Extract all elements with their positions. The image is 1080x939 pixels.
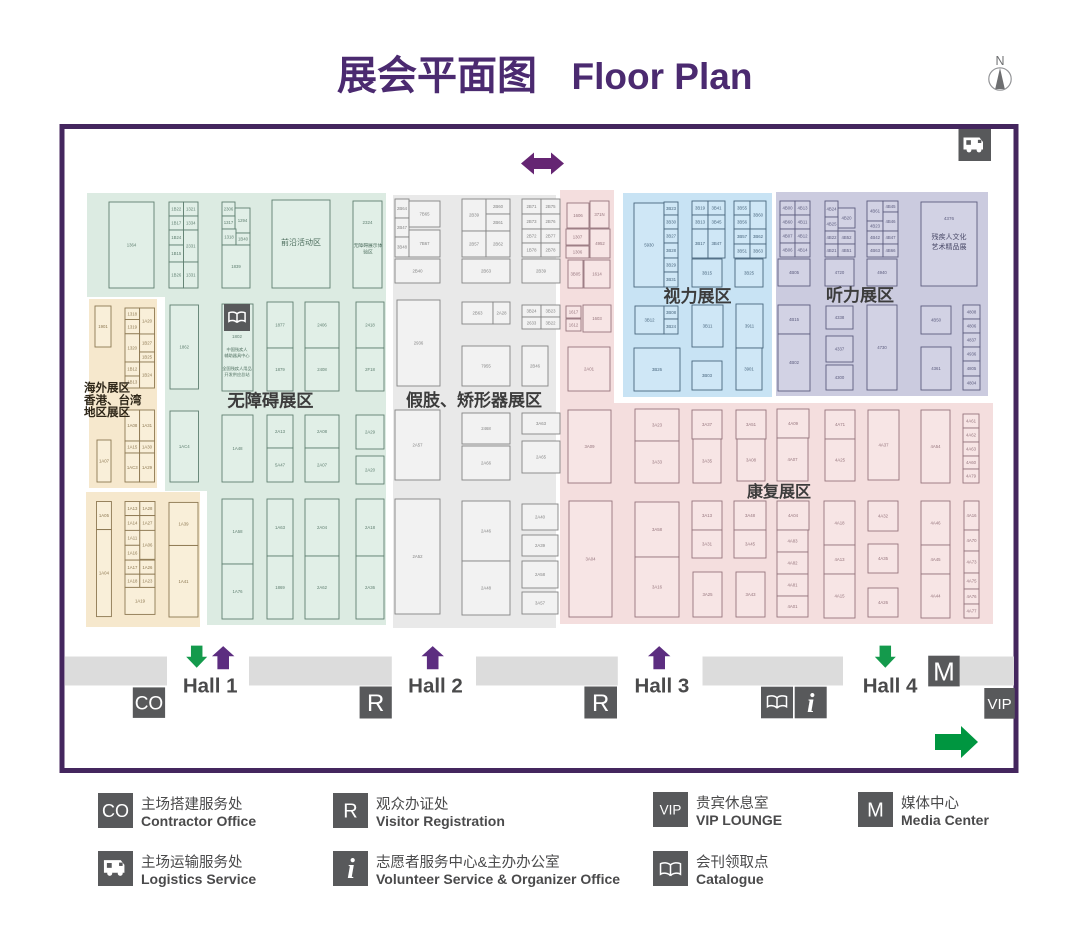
svg-text:4300: 4300 bbox=[835, 375, 845, 380]
svg-text:1879: 1879 bbox=[275, 367, 285, 372]
svg-text:3B47: 3B47 bbox=[711, 241, 722, 246]
svg-text:康复展区: 康复展区 bbox=[747, 482, 811, 501]
svg-text:3B08: 3B08 bbox=[666, 310, 677, 315]
svg-text:2B61: 2B61 bbox=[493, 220, 504, 225]
svg-text:2A20: 2A20 bbox=[365, 468, 376, 473]
svg-text:1A39: 1A39 bbox=[178, 522, 189, 527]
svg-text:4A46: 4A46 bbox=[930, 521, 941, 526]
svg-text:3B12: 3B12 bbox=[644, 318, 655, 323]
svg-text:1B17: 1B17 bbox=[171, 221, 182, 226]
svg-text:3B60: 3B60 bbox=[753, 213, 764, 218]
svg-text:2A40: 2A40 bbox=[535, 515, 546, 520]
svg-text:4B11: 4B11 bbox=[798, 220, 808, 225]
svg-text:4B42: 4B42 bbox=[870, 235, 881, 240]
svg-text:4A35: 4A35 bbox=[878, 556, 889, 561]
svg-text:1AC3: 1AC3 bbox=[127, 465, 138, 470]
svg-text:1306: 1306 bbox=[573, 250, 583, 255]
svg-text:VIP LOUNGE: VIP LOUNGE bbox=[696, 812, 782, 828]
svg-text:3B25: 3B25 bbox=[744, 271, 755, 276]
svg-text:4A54: 4A54 bbox=[930, 444, 941, 449]
svg-text:3911: 3911 bbox=[745, 324, 755, 329]
svg-text:1A26: 1A26 bbox=[142, 565, 153, 570]
svg-text:4B61: 4B61 bbox=[870, 209, 881, 214]
svg-text:1B26: 1B26 bbox=[171, 273, 182, 278]
svg-text:1318: 1318 bbox=[128, 311, 138, 316]
svg-text:3B48: 3B48 bbox=[397, 245, 408, 250]
svg-text:3B24: 3B24 bbox=[526, 309, 537, 314]
svg-text:1B22: 1B22 bbox=[171, 207, 182, 212]
svg-text:4A82: 4A82 bbox=[787, 561, 798, 566]
svg-text:展会平面图: 展会平面图 bbox=[337, 54, 537, 98]
svg-text:1901: 1901 bbox=[98, 324, 108, 329]
svg-text:3A58: 3A58 bbox=[652, 527, 663, 532]
svg-text:假肢、矫形器展区: 假肢、矫形器展区 bbox=[406, 390, 542, 410]
svg-text:4952: 4952 bbox=[595, 241, 605, 246]
svg-text:1A17: 1A17 bbox=[127, 565, 138, 570]
svg-text:3A63: 3A63 bbox=[536, 421, 547, 426]
svg-text:2468: 2468 bbox=[481, 426, 491, 431]
svg-text:4376: 4376 bbox=[944, 216, 955, 221]
svg-text:验区: 验区 bbox=[363, 249, 373, 256]
svg-text:4B14: 4B14 bbox=[797, 248, 808, 253]
svg-text:2B63: 2B63 bbox=[472, 311, 483, 316]
svg-text:2A52: 2A52 bbox=[412, 554, 423, 559]
svg-text:1A19: 1A19 bbox=[135, 599, 146, 604]
svg-text:3B51: 3B51 bbox=[737, 249, 748, 254]
svg-text:2A58: 2A58 bbox=[535, 572, 546, 577]
svg-text:贵宾休息室: 贵宾休息室 bbox=[696, 795, 769, 812]
svg-text:3B30: 3B30 bbox=[666, 220, 677, 225]
svg-text:2633: 2633 bbox=[527, 321, 537, 326]
svg-text:1A30: 1A30 bbox=[142, 445, 153, 450]
svg-text:3A33: 3A33 bbox=[652, 460, 663, 465]
svg-text:1A28: 1A28 bbox=[142, 506, 153, 511]
svg-text:2B71: 2B71 bbox=[526, 204, 537, 209]
svg-text:4A32: 4A32 bbox=[878, 514, 889, 519]
svg-text:1A13: 1A13 bbox=[127, 506, 138, 511]
svg-text:无障碍展示体: 无障碍展示体 bbox=[354, 242, 383, 249]
svg-text:Logistics Service: Logistics Service bbox=[141, 871, 256, 887]
svg-text:3B26: 3B26 bbox=[652, 367, 663, 372]
svg-text:2A57: 2A57 bbox=[412, 443, 423, 448]
svg-text:4A37: 4A37 bbox=[878, 443, 889, 448]
svg-text:1612: 1612 bbox=[569, 323, 579, 328]
svg-text:3B19: 3B19 bbox=[695, 206, 706, 211]
svg-text:4A73: 4A73 bbox=[966, 560, 977, 565]
svg-text:3901: 3901 bbox=[744, 367, 754, 372]
svg-text:1307: 1307 bbox=[573, 235, 583, 240]
svg-text:2B39: 2B39 bbox=[536, 269, 547, 274]
svg-text:3B41: 3B41 bbox=[711, 206, 722, 211]
svg-text:2B75: 2B75 bbox=[545, 204, 556, 209]
svg-text:2B39: 2B39 bbox=[469, 213, 480, 218]
svg-text:3B28: 3B28 bbox=[666, 248, 677, 253]
svg-text:3A23: 3A23 bbox=[652, 423, 663, 428]
svg-text:残疾人文化: 残疾人文化 bbox=[932, 232, 967, 241]
svg-text:3A16: 3A16 bbox=[652, 585, 663, 590]
svg-text:2A66: 2A66 bbox=[481, 461, 492, 466]
svg-text:2B46: 2B46 bbox=[530, 364, 541, 369]
svg-text:1334: 1334 bbox=[186, 221, 196, 226]
svg-text:3B13: 3B13 bbox=[695, 220, 706, 225]
svg-text:1606: 1606 bbox=[573, 213, 583, 218]
svg-text:4B00: 4B00 bbox=[782, 206, 793, 211]
svg-text:4A79: 4A79 bbox=[966, 474, 977, 479]
svg-text:5930: 5930 bbox=[644, 243, 654, 248]
svg-text:CO: CO bbox=[102, 801, 129, 821]
svg-text:1331: 1331 bbox=[186, 273, 196, 278]
svg-text:4B07: 4B07 bbox=[782, 234, 793, 239]
svg-text:媒体中心: 媒体中心 bbox=[901, 795, 959, 812]
svg-text:3A43: 3A43 bbox=[745, 592, 756, 597]
svg-text:CO: CO bbox=[135, 693, 164, 714]
svg-text:4A60: 4A60 bbox=[966, 460, 977, 465]
svg-text:2B47: 2B47 bbox=[397, 225, 408, 230]
svg-text:3A35: 3A35 bbox=[702, 459, 713, 464]
svg-text:1862: 1862 bbox=[179, 345, 189, 350]
svg-text:4A76: 4A76 bbox=[966, 594, 977, 599]
svg-text:3B31: 3B31 bbox=[666, 277, 677, 282]
svg-text:2331: 2331 bbox=[186, 244, 196, 249]
svg-text:3B05: 3B05 bbox=[570, 272, 581, 277]
svg-text:会刊领取点: 会刊领取点 bbox=[696, 854, 769, 871]
svg-text:3B62: 3B62 bbox=[753, 234, 764, 239]
svg-text:371N: 371N bbox=[594, 212, 604, 217]
svg-text:2A29: 2A29 bbox=[365, 430, 376, 435]
svg-text:4A83: 4A83 bbox=[787, 539, 798, 544]
svg-text:1869: 1869 bbox=[275, 585, 285, 590]
svg-text:香港、台湾: 香港、台湾 bbox=[83, 393, 142, 407]
svg-text:1B25: 1B25 bbox=[142, 355, 153, 360]
svg-text:3B11: 3B11 bbox=[703, 324, 713, 329]
svg-text:2A04: 2A04 bbox=[317, 525, 328, 530]
svg-text:Hall 4: Hall 4 bbox=[863, 675, 918, 698]
svg-text:3A48: 3A48 bbox=[745, 513, 756, 518]
svg-text:1A07: 1A07 bbox=[99, 459, 110, 464]
svg-text:2936: 2936 bbox=[414, 341, 424, 346]
svg-text:4720: 4720 bbox=[835, 270, 845, 275]
svg-text:3B45: 3B45 bbox=[711, 220, 722, 225]
svg-text:4A61: 4A61 bbox=[966, 419, 977, 424]
svg-text:2B40: 2B40 bbox=[412, 269, 423, 274]
svg-text:2A62: 2A62 bbox=[317, 585, 328, 590]
svg-text:1A48: 1A48 bbox=[232, 446, 243, 451]
svg-text:2A39: 2A39 bbox=[535, 543, 546, 548]
svg-text:4A70: 4A70 bbox=[966, 538, 977, 543]
svg-text:1A20: 1A20 bbox=[142, 319, 153, 324]
svg-text:7B65: 7B65 bbox=[419, 212, 430, 217]
svg-text:1A29: 1A29 bbox=[142, 465, 153, 470]
svg-text:2A48: 2A48 bbox=[481, 586, 492, 591]
svg-text:主场搭建服务处: 主场搭建服务处 bbox=[141, 796, 243, 813]
svg-text:4A18: 4A18 bbox=[834, 521, 845, 526]
svg-text:1294: 1294 bbox=[238, 218, 248, 223]
svg-text:3A25: 3A25 bbox=[702, 592, 713, 597]
svg-text:Hall 2: Hall 2 bbox=[408, 675, 463, 698]
svg-text:4338: 4338 bbox=[835, 315, 845, 320]
svg-text:2A36: 2A36 bbox=[365, 585, 376, 590]
svg-text:3B29: 3B29 bbox=[666, 263, 677, 268]
svg-text:地区展区: 地区展区 bbox=[84, 405, 130, 419]
svg-text:1317: 1317 bbox=[224, 220, 234, 225]
svg-text:M: M bbox=[933, 656, 955, 686]
svg-text:VIP: VIP bbox=[987, 696, 1011, 713]
svg-text:1A31: 1A31 bbox=[142, 423, 153, 428]
svg-text:前沿活动区: 前沿活动区 bbox=[281, 237, 321, 247]
svg-text:2B76: 2B76 bbox=[545, 219, 556, 224]
svg-text:4A45: 4A45 bbox=[930, 557, 941, 562]
svg-text:7B67: 7B67 bbox=[419, 241, 430, 246]
svg-text:4B13: 4B13 bbox=[797, 206, 808, 211]
svg-text:3A37: 3A37 bbox=[702, 422, 713, 427]
svg-text:2306: 2306 bbox=[224, 207, 234, 212]
svg-text:5A47: 5A47 bbox=[275, 463, 286, 468]
svg-text:2A07: 2A07 bbox=[317, 463, 328, 468]
svg-text:4A63: 4A63 bbox=[966, 447, 977, 452]
svg-text:1A63: 1A63 bbox=[275, 525, 286, 530]
svg-text:R: R bbox=[343, 801, 357, 823]
svg-text:4A81: 4A81 bbox=[787, 583, 798, 588]
svg-text:4804: 4804 bbox=[967, 381, 977, 386]
svg-text:1B12: 1B12 bbox=[127, 367, 138, 372]
svg-text:4A26: 4A26 bbox=[878, 600, 889, 605]
svg-text:3A57: 3A57 bbox=[535, 601, 546, 606]
svg-text:艺术精品展: 艺术精品展 bbox=[932, 242, 967, 251]
svg-text:2406: 2406 bbox=[317, 323, 327, 328]
svg-text:4A71: 4A71 bbox=[835, 422, 846, 427]
svg-text:辅助器具中心: 辅助器具中心 bbox=[224, 352, 250, 359]
svg-text:R: R bbox=[367, 690, 384, 717]
svg-text:i: i bbox=[807, 688, 815, 718]
svg-text:4B06: 4B06 bbox=[782, 248, 793, 253]
svg-text:1321: 1321 bbox=[186, 207, 196, 212]
svg-text:志愿者服务中心&主办办公室: 志愿者服务中心&主办办公室 bbox=[376, 854, 560, 871]
svg-text:3B55: 3B55 bbox=[737, 206, 748, 211]
svg-text:1A41: 1A41 bbox=[178, 579, 189, 584]
svg-text:2A46: 2A46 bbox=[481, 529, 492, 534]
svg-text:Contractor Office: Contractor Office bbox=[141, 813, 256, 829]
svg-text:4A13: 4A13 bbox=[834, 557, 845, 562]
svg-text:4A07: 4A07 bbox=[787, 457, 798, 462]
svg-text:4B05: 4B05 bbox=[789, 270, 800, 275]
svg-text:1B78: 1B78 bbox=[526, 248, 537, 253]
svg-text:3B27: 3B27 bbox=[666, 234, 677, 239]
svg-text:4805: 4805 bbox=[967, 366, 977, 371]
svg-text:3B15: 3B15 bbox=[702, 271, 713, 276]
svg-text:中国残疾人: 中国残疾人 bbox=[227, 346, 249, 353]
svg-text:3B23: 3B23 bbox=[666, 206, 677, 211]
svg-text:4837: 4837 bbox=[967, 338, 977, 343]
svg-text:4730: 4730 bbox=[877, 345, 887, 350]
svg-text:2A13: 2A13 bbox=[275, 429, 286, 434]
svg-text:1802: 1802 bbox=[232, 334, 243, 339]
svg-text:1A23: 1A23 bbox=[142, 578, 153, 583]
svg-text:Catalogue: Catalogue bbox=[696, 871, 764, 887]
svg-text:4B51: 4B51 bbox=[841, 248, 852, 253]
svg-text:1A58: 1A58 bbox=[232, 529, 243, 534]
svg-text:4337: 4337 bbox=[835, 347, 845, 352]
svg-text:4B60: 4B60 bbox=[782, 220, 793, 225]
svg-text:1A27: 1A27 bbox=[142, 521, 153, 526]
svg-text:1A16: 1A16 bbox=[127, 550, 138, 555]
svg-text:1A11: 1A11 bbox=[128, 535, 138, 540]
svg-text:3B24: 3B24 bbox=[666, 324, 677, 329]
svg-text:4A44: 4A44 bbox=[930, 594, 941, 599]
svg-text:3A45: 3A45 bbox=[745, 542, 756, 547]
svg-text:2A28: 2A28 bbox=[496, 311, 507, 316]
svg-text:Floor Plan: Floor Plan bbox=[572, 56, 753, 97]
svg-text:无障碍展区: 无障碍展区 bbox=[228, 391, 314, 411]
svg-text:2B60: 2B60 bbox=[493, 204, 504, 209]
svg-text:Volunteer Service & Organizer: Volunteer Service & Organizer Office bbox=[376, 871, 620, 887]
svg-text:4B45: 4B45 bbox=[885, 204, 896, 209]
svg-text:4B02: 4B02 bbox=[789, 360, 800, 365]
svg-text:4A09: 4A09 bbox=[788, 421, 799, 426]
svg-text:1877: 1877 bbox=[275, 323, 285, 328]
svg-text:3B03: 3B03 bbox=[702, 373, 713, 378]
svg-text:开发供应总站: 开发供应总站 bbox=[224, 371, 249, 378]
svg-text:3A04: 3A04 bbox=[585, 557, 596, 562]
svg-text:i: i bbox=[347, 854, 355, 885]
svg-text:1839: 1839 bbox=[231, 264, 241, 269]
svg-text:观众办证处: 观众办证处 bbox=[376, 796, 449, 813]
svg-text:3B22: 3B22 bbox=[545, 321, 556, 326]
svg-text:1364: 1364 bbox=[127, 243, 137, 248]
svg-text:视力展区: 视力展区 bbox=[664, 286, 732, 306]
svg-text:N: N bbox=[995, 54, 1004, 68]
svg-text:2B72: 2B72 bbox=[526, 234, 537, 239]
svg-text:1A04: 1A04 bbox=[99, 571, 110, 576]
svg-text:1A05: 1A05 bbox=[99, 513, 110, 518]
svg-text:1614: 1614 bbox=[592, 272, 602, 277]
svg-text:1B15: 1B15 bbox=[171, 251, 182, 256]
svg-text:1318: 1318 bbox=[224, 235, 234, 240]
svg-text:3B17: 3B17 bbox=[695, 241, 706, 246]
svg-text:2B73: 2B73 bbox=[526, 219, 537, 224]
svg-text:2B78: 2B78 bbox=[545, 248, 556, 253]
svg-text:2A01: 2A01 bbox=[584, 367, 595, 372]
svg-text:1A14: 1A14 bbox=[127, 521, 138, 526]
svg-text:1A18: 1A18 bbox=[127, 578, 138, 583]
svg-text:Media Center: Media Center bbox=[901, 812, 989, 828]
svg-text:7955: 7955 bbox=[481, 364, 491, 369]
svg-text:4808: 4808 bbox=[967, 310, 977, 315]
svg-text:4B63: 4B63 bbox=[870, 248, 881, 253]
svg-text:2A18: 2A18 bbox=[365, 525, 376, 530]
svg-text:3A08: 3A08 bbox=[746, 458, 757, 463]
svg-text:1617: 1617 bbox=[569, 310, 579, 315]
svg-text:1A06: 1A06 bbox=[142, 542, 153, 547]
svg-text:2B64: 2B64 bbox=[397, 206, 408, 211]
svg-text:R: R bbox=[592, 690, 609, 717]
svg-text:2F18: 2F18 bbox=[365, 367, 375, 372]
svg-text:2B62: 2B62 bbox=[493, 242, 504, 247]
svg-text:4A15: 4A15 bbox=[834, 594, 845, 599]
svg-text:3B56: 3B56 bbox=[737, 220, 748, 225]
svg-text:1603: 1603 bbox=[592, 316, 602, 321]
svg-text:2A08: 2A08 bbox=[317, 429, 328, 434]
svg-text:4B46: 4B46 bbox=[885, 219, 896, 224]
svg-text:1AC4: 1AC4 bbox=[179, 444, 190, 449]
svg-text:4B24: 4B24 bbox=[826, 207, 837, 212]
svg-text:2A65: 2A65 bbox=[536, 455, 547, 460]
svg-text:主场运输服务处: 主场运输服务处 bbox=[141, 854, 243, 871]
svg-text:4B21: 4B21 bbox=[826, 248, 837, 253]
svg-text:3B57: 3B57 bbox=[737, 234, 748, 239]
svg-text:VIP: VIP bbox=[660, 803, 682, 818]
svg-text:4A25: 4A25 bbox=[835, 458, 846, 463]
svg-text:4A77: 4A77 bbox=[966, 609, 977, 614]
svg-text:2B57: 2B57 bbox=[469, 242, 480, 247]
svg-text:4B52: 4B52 bbox=[841, 235, 852, 240]
svg-text:4B47: 4B47 bbox=[885, 235, 896, 240]
svg-text:4A04: 4A04 bbox=[788, 513, 799, 518]
svg-text:海外展区: 海外展区 bbox=[84, 381, 130, 395]
svg-text:2408: 2408 bbox=[317, 367, 327, 372]
svg-text:4936: 4936 bbox=[967, 352, 977, 357]
svg-text:1A15: 1A15 bbox=[127, 445, 138, 450]
svg-text:3B63: 3B63 bbox=[753, 249, 764, 254]
svg-text:4A62: 4A62 bbox=[966, 433, 977, 438]
svg-text:2B63: 2B63 bbox=[481, 269, 492, 274]
svg-text:1A08: 1A08 bbox=[127, 423, 138, 428]
svg-text:4361: 4361 bbox=[931, 366, 941, 371]
svg-text:1A76: 1A76 bbox=[232, 589, 243, 594]
svg-text:3A09: 3A09 bbox=[584, 444, 595, 449]
svg-text:1320: 1320 bbox=[128, 346, 138, 351]
svg-text:3A31: 3A31 bbox=[702, 542, 713, 547]
svg-text:4B23: 4B23 bbox=[870, 224, 881, 229]
svg-text:4B22: 4B22 bbox=[826, 235, 837, 240]
svg-text:2418: 2418 bbox=[365, 323, 375, 328]
svg-text:3B23: 3B23 bbox=[545, 309, 556, 314]
svg-text:1B24: 1B24 bbox=[142, 373, 153, 378]
svg-text:1319: 1319 bbox=[128, 324, 138, 329]
svg-text:Visitor Registration: Visitor Registration bbox=[376, 813, 505, 829]
svg-text:3A13: 3A13 bbox=[702, 513, 713, 518]
svg-text:4B12: 4B12 bbox=[797, 234, 808, 239]
svg-text:Hall 1: Hall 1 bbox=[183, 675, 238, 698]
svg-text:1B40: 1B40 bbox=[238, 237, 249, 242]
svg-text:4806: 4806 bbox=[967, 324, 977, 329]
svg-text:3A51: 3A51 bbox=[746, 422, 757, 427]
svg-text:4B15: 4B15 bbox=[789, 317, 800, 322]
svg-text:4A16: 4A16 bbox=[966, 513, 977, 518]
svg-text:4A75: 4A75 bbox=[966, 579, 977, 584]
svg-text:Hall 3: Hall 3 bbox=[635, 675, 690, 698]
svg-text:2B77: 2B77 bbox=[545, 234, 556, 239]
svg-text:4B25: 4B25 bbox=[826, 222, 837, 227]
svg-text:1B27: 1B27 bbox=[142, 341, 153, 346]
svg-text:4B50: 4B50 bbox=[931, 318, 942, 323]
svg-text:2324: 2324 bbox=[362, 220, 373, 225]
svg-text:4940: 4940 bbox=[877, 270, 887, 275]
svg-text:1B24: 1B24 bbox=[171, 235, 182, 240]
svg-text:M: M bbox=[867, 800, 884, 822]
svg-text:4B20: 4B20 bbox=[841, 216, 852, 221]
svg-text:全国残疾人用品: 全国残疾人用品 bbox=[222, 365, 251, 372]
svg-text:4B66: 4B66 bbox=[885, 248, 896, 253]
svg-text:听力展区: 听力展区 bbox=[826, 285, 894, 305]
svg-text:4A01: 4A01 bbox=[787, 604, 798, 609]
